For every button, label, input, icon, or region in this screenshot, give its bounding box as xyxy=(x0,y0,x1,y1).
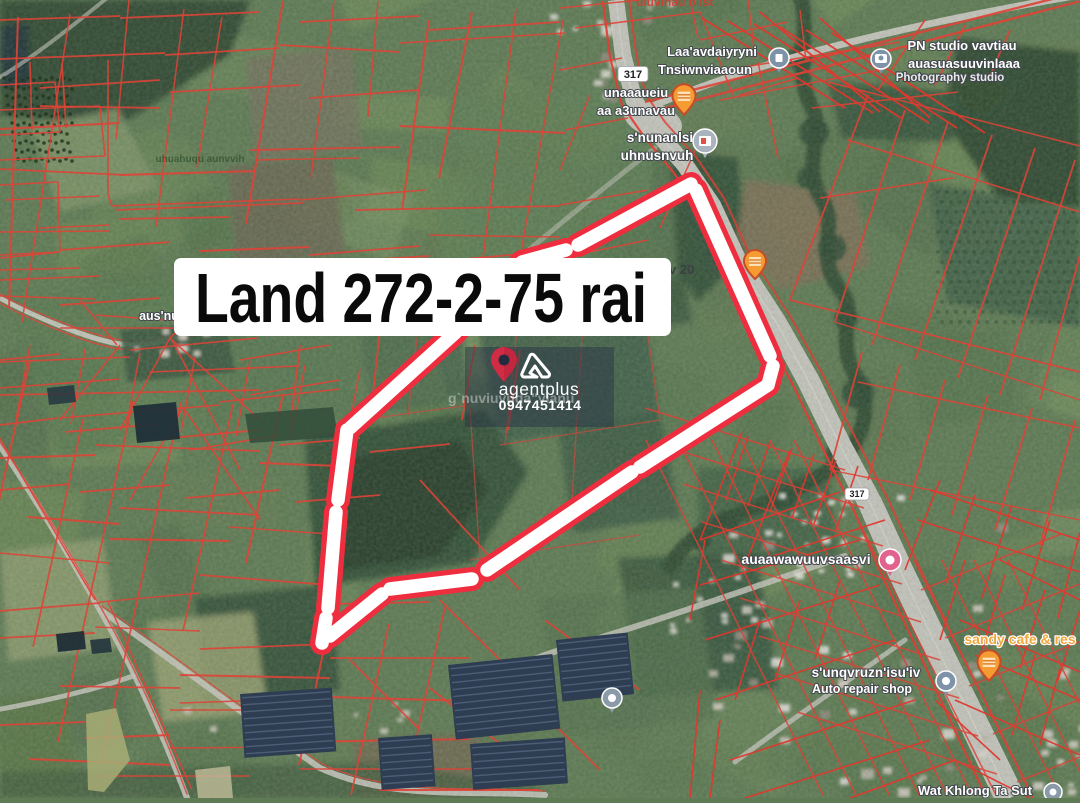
svg-text:aa a3unavau: aa a3unavau xyxy=(597,103,675,118)
svg-text:Wat Khlong Ta Sut: Wat Khlong Ta Sut xyxy=(918,783,1033,798)
svg-text:agentplus: agentplus xyxy=(499,379,579,399)
svg-text:uhuahuqu aunvvih: uhuahuqu aunvvih xyxy=(156,154,245,165)
svg-text:uhnusnvuh: uhnusnvuh xyxy=(621,148,694,163)
svg-text:0947451414: 0947451414 xyxy=(499,397,582,413)
svg-text:s'unqvruzn'isu'iv: s'unqvruzn'isu'iv xyxy=(812,665,921,680)
svg-text:s'nunanlsi: s'nunanlsi xyxy=(627,130,693,145)
svg-text:unaaaueiu: unaaaueiu xyxy=(604,85,668,100)
svg-text:aus'nu: aus'nu xyxy=(139,309,179,323)
svg-text:317: 317 xyxy=(849,489,864,499)
svg-text:317: 317 xyxy=(624,69,642,81)
svg-text:auasuasuuvinlaaa: auasuasuuvinlaaa xyxy=(908,56,1021,71)
svg-text:PN studio vavtiau: PN studio vavtiau xyxy=(907,38,1016,53)
svg-text:Photography studio: Photography studio xyxy=(896,72,1005,84)
svg-text:Tnsiwnviaaoun: Tnsiwnviaaoun xyxy=(658,62,752,77)
svg-text:Land 272-2-75 rai: Land 272-2-75 rai xyxy=(195,259,647,337)
svg-text:Laa'avdaiyryni: Laa'avdaiyryni xyxy=(667,44,757,59)
svg-text:uiuvinau o lst: uiuvinau o lst xyxy=(636,0,713,9)
svg-text:Auto repair shop: Auto repair shop xyxy=(812,682,912,696)
svg-text:auaawawuuvsaasvi: auaawawuuvsaasvi xyxy=(741,551,870,567)
svg-text:sandy cafe & res: sandy cafe & res xyxy=(964,631,1075,647)
